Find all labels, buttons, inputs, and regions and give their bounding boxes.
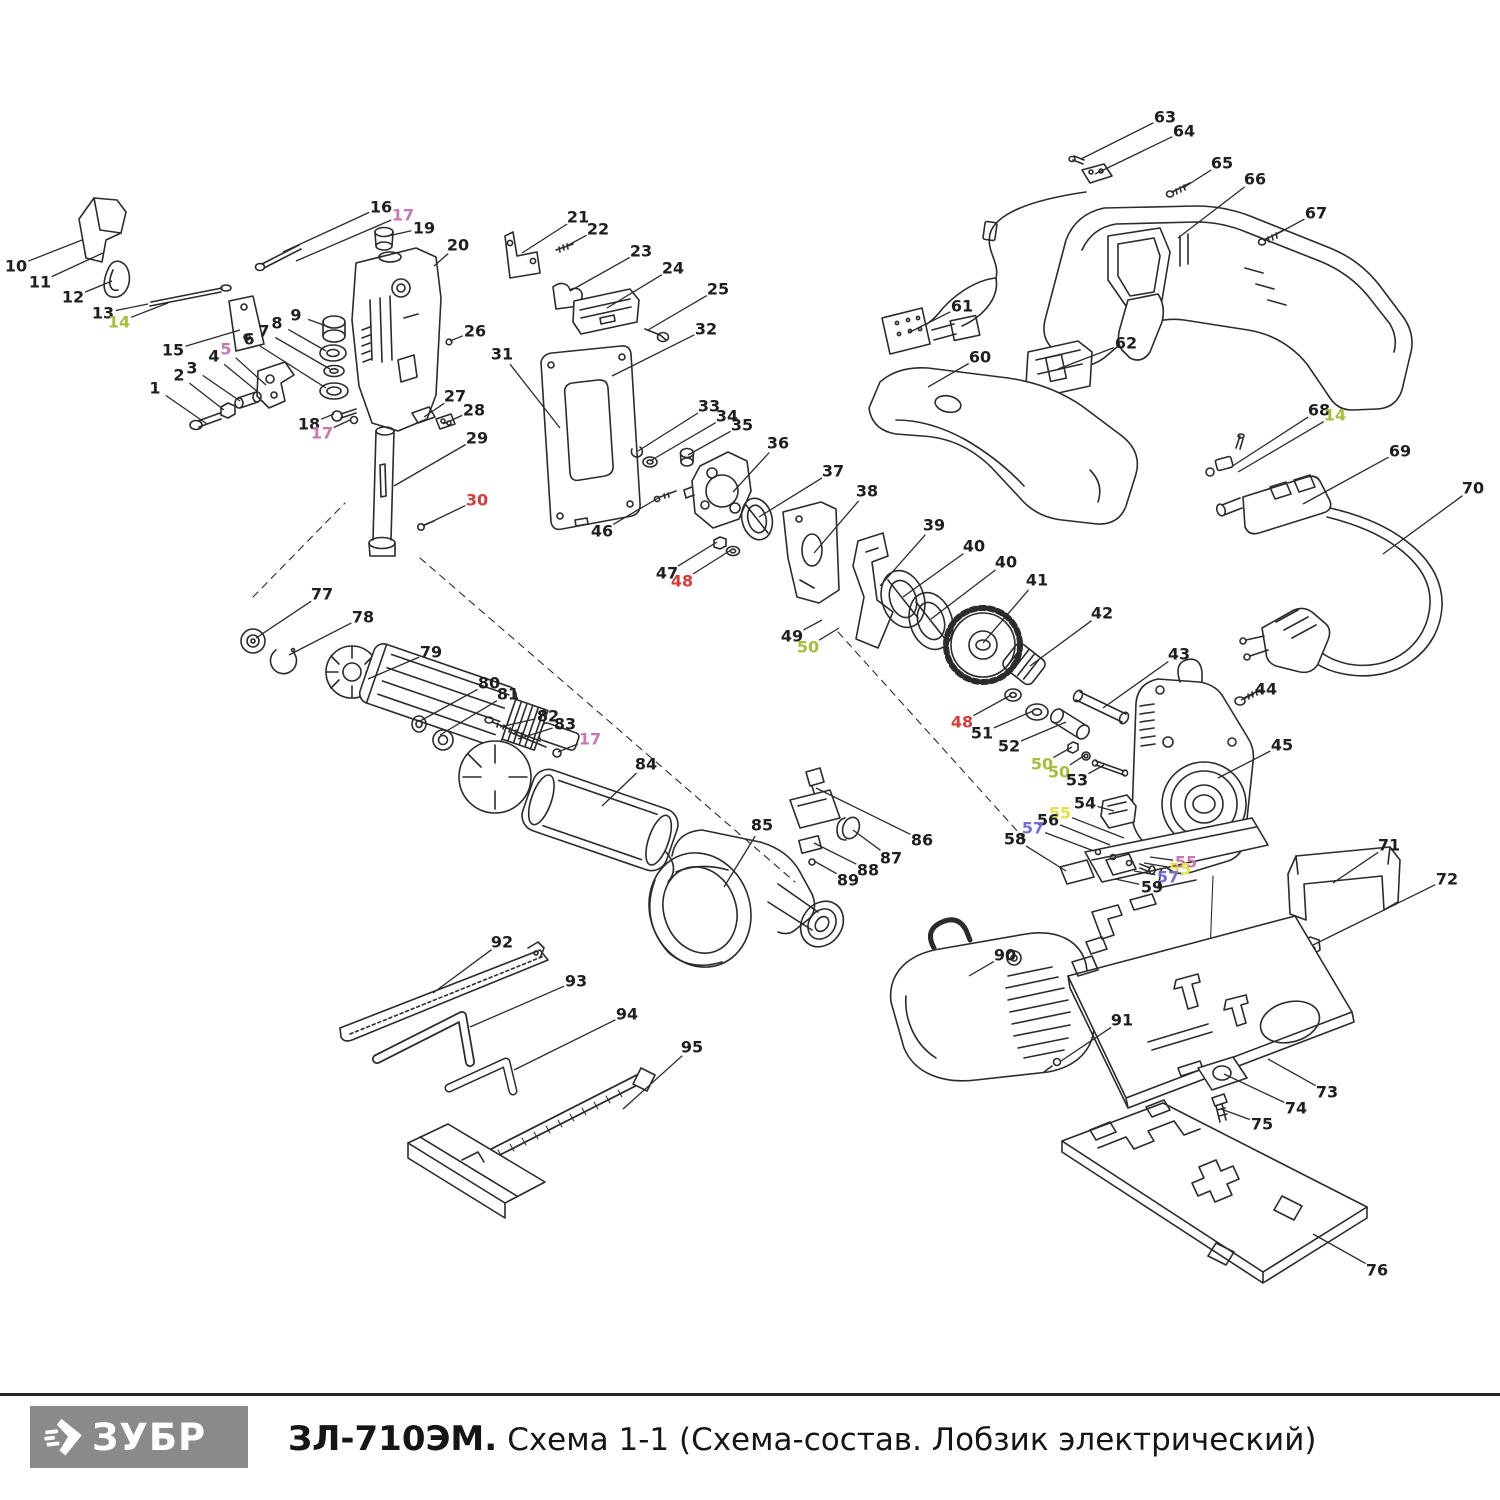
leader-line-59: [1115, 879, 1139, 884]
part-label-24: 24: [662, 259, 684, 278]
part-label-31: 31: [491, 345, 513, 364]
leader-line-56: [1060, 825, 1110, 845]
part-label-23: 23: [630, 242, 652, 261]
leader-line-77: [256, 601, 311, 638]
part-label-20: 20: [447, 236, 469, 255]
part-label-52: 52: [998, 737, 1020, 756]
part-label-60: 60: [969, 348, 991, 367]
part-label-84: 84: [635, 755, 657, 774]
part-label-7: 7: [258, 322, 269, 341]
part-holder-plate-38: [783, 502, 839, 603]
part-housing-shell-60: [869, 368, 1137, 524]
part-label-86: 86: [911, 831, 933, 850]
part-blade-holder-bracket: [79, 198, 129, 297]
leader-line-70: [1383, 496, 1463, 554]
part-label-64: 64: [1173, 122, 1195, 141]
part-label-74: 74: [1285, 1099, 1307, 1118]
part-plunger-housing-20: [352, 248, 441, 431]
part-stator-84: [518, 765, 683, 882]
part-label-38: 38: [856, 482, 878, 501]
leader-line-63: [1081, 123, 1153, 159]
part-label-2: 2: [173, 366, 184, 385]
part-label-91: 91: [1111, 1011, 1133, 1030]
part-label-93: 93: [565, 972, 587, 991]
part-label-66: 66: [1244, 170, 1266, 189]
part-label-8: 8: [271, 314, 282, 333]
leader-line-11: [52, 253, 103, 277]
leader-line-39: [880, 535, 925, 586]
leader-line-51: [994, 711, 1033, 728]
leader-line-34: [650, 423, 716, 461]
leader-line-93: [470, 986, 564, 1027]
part-label-67: 67: [1305, 204, 1327, 223]
part-label-19: 19: [413, 219, 435, 238]
leader-line-94: [514, 1020, 615, 1070]
part-label-88: 88: [857, 861, 879, 880]
leader-line-4: [224, 364, 258, 392]
part-label-25: 25: [707, 280, 729, 299]
part-label-69: 69: [1389, 442, 1411, 461]
part-label-46: 46: [591, 522, 613, 541]
leader-line-9: [308, 319, 329, 327]
part-brush-assembly-86-89: [790, 768, 862, 865]
leader-line-88: [814, 843, 856, 864]
leader-line-10: [28, 240, 82, 261]
leader-line-50: [1070, 755, 1085, 765]
part-label-4: 4: [208, 347, 219, 366]
leader-line-22: [565, 235, 587, 247]
part-label-5: 5: [220, 340, 231, 359]
part-label-73: 73: [1316, 1083, 1338, 1102]
part-label-89: 89: [837, 871, 859, 890]
leader-line-14: [131, 303, 168, 317]
leader-line-89: [814, 861, 837, 874]
part-label-30: 30: [466, 491, 488, 510]
part-cord-clamp-68: [1206, 434, 1244, 476]
part-label-37: 37: [822, 462, 844, 481]
exploded-parts-artwork: [79, 156, 1442, 1283]
part-cover-plate-76: [1062, 1100, 1367, 1283]
part-fan-guard: [459, 741, 531, 813]
part-label-43: 43: [1168, 645, 1190, 664]
part-label-70: 70: [1462, 479, 1484, 498]
part-label-14: 14: [108, 313, 130, 332]
leader-line-52: [1021, 722, 1066, 741]
part-label-42: 42: [1091, 604, 1113, 623]
part-gasket-plates-31-32: [541, 346, 640, 529]
exploded-diagram: 1234567891011121314151617181719202122232…: [0, 0, 1500, 1393]
part-label-50: 50: [797, 638, 819, 657]
part-label-94: 94: [616, 1005, 638, 1024]
leader-line-41: [983, 590, 1029, 643]
part-edge-guide-95: [408, 1068, 655, 1218]
leader-line-23: [570, 257, 630, 291]
part-label-15: 15: [162, 341, 184, 360]
leader-line-64: [1095, 137, 1172, 174]
part-label-9: 9: [290, 306, 301, 325]
part-label-75: 75: [1251, 1115, 1273, 1134]
part-label-95: 95: [681, 1038, 703, 1057]
part-handle-66: [1044, 156, 1412, 410]
leader-line-78: [289, 623, 351, 655]
part-label-45: 45: [1271, 736, 1293, 755]
leader-line-74: [1224, 1074, 1284, 1102]
part-label-62: 62: [1115, 334, 1137, 353]
part-label-21: 21: [567, 208, 589, 227]
leader-line-76: [1313, 1234, 1366, 1264]
part-label-87: 87: [880, 849, 902, 868]
part-label-36: 36: [767, 434, 789, 453]
leader-line-87: [853, 830, 881, 850]
leader-line-33: [638, 413, 698, 451]
exploded-view-page: 1234567891011121314151617181719202122232…: [0, 0, 1500, 1500]
part-clamp-74-screw-75: [1198, 1057, 1247, 1122]
part-label-28: 28: [463, 401, 485, 420]
part-cap-19: [375, 228, 393, 251]
leader-line-30: [423, 506, 465, 526]
part-label-14: 14: [1324, 406, 1346, 425]
part-label-78: 78: [352, 608, 374, 627]
part-label-32: 32: [695, 320, 717, 339]
part-label-81: 81: [497, 685, 519, 704]
leader-line-19: [388, 231, 411, 236]
part-bearing-77-ring-78: [241, 629, 296, 674]
part-label-76: 76: [1366, 1261, 1388, 1280]
leader-line-49: [804, 620, 823, 630]
part-label-29: 29: [466, 429, 488, 448]
leader-line-14: [1238, 422, 1324, 472]
part-label-1: 1: [149, 379, 160, 398]
part-label-65: 65: [1211, 154, 1233, 173]
leader-line-29: [394, 445, 466, 487]
part-label-39: 39: [923, 516, 945, 535]
zubr-arrow-icon: [42, 1414, 88, 1460]
part-screw-18: [332, 409, 358, 424]
part-pinion-42: [1001, 641, 1048, 687]
brand-logo: ЗУБР: [30, 1406, 248, 1468]
part-label-59: 59: [1141, 878, 1163, 897]
part-label-17: 17: [392, 206, 414, 225]
part-label-40: 40: [963, 537, 985, 556]
leader-line-15: [186, 330, 241, 346]
part-label-41: 41: [1026, 571, 1048, 590]
part-label-6: 6: [243, 330, 254, 349]
leader-line-13: [116, 304, 148, 311]
part-label-72: 72: [1436, 870, 1458, 889]
part-label-58: 58: [1004, 830, 1026, 849]
part-label-22: 22: [587, 220, 609, 239]
part-label-53: 53: [1066, 771, 1088, 790]
part-label-48: 48: [671, 572, 693, 591]
leader-line-48: [973, 695, 1011, 716]
footer-divider: [0, 1393, 1500, 1396]
part-hex-keys-93-94: [377, 1016, 513, 1091]
part-label-51: 51: [971, 724, 993, 743]
part-label-44: 44: [1255, 680, 1277, 699]
part-label-17: 17: [579, 730, 601, 749]
part-plunger-rod-29: [369, 427, 395, 556]
part-label-61: 61: [951, 297, 973, 316]
leader-line-26: [450, 336, 463, 341]
part-label-85: 85: [751, 816, 773, 835]
part-label-12: 12: [62, 288, 84, 307]
part-label-11: 11: [29, 273, 51, 292]
brand-logo-text: ЗУБР: [92, 1419, 206, 1456]
schematic-title: ЗЛ-710ЭМ.Схема 1-1 (Схема-состав. Лобзик…: [288, 1419, 1316, 1459]
part-label-26: 26: [464, 322, 486, 341]
part-label-48: 48: [951, 713, 973, 732]
part-label-40: 40: [995, 553, 1017, 572]
part-label-71: 71: [1378, 836, 1400, 855]
part-label-77: 77: [311, 585, 333, 604]
leader-line-50: [819, 628, 839, 640]
part-label-17: 17: [311, 424, 333, 443]
model-name: ЗЛ-710ЭМ.: [288, 1419, 497, 1459]
leader-line-72: [1313, 885, 1435, 945]
leader-line-1: [166, 395, 207, 424]
part-label-16: 16: [370, 198, 392, 217]
leader-line-58: [1026, 846, 1066, 871]
part-cord-protector-69: [1215, 475, 1330, 534]
part-support-39: [853, 533, 893, 648]
part-label-35: 35: [731, 416, 753, 435]
part-label-92: 92: [491, 933, 513, 952]
part-label-90: 90: [994, 946, 1016, 965]
leader-line-12: [85, 281, 112, 292]
part-label-10: 10: [5, 257, 27, 276]
part-label-3: 3: [186, 359, 197, 378]
leader-line-65: [1183, 170, 1211, 188]
schematic-caption: Схема 1-1 (Схема-состав. Лобзик электрич…: [507, 1422, 1316, 1458]
part-end-cover-90: [891, 920, 1095, 1081]
leader-line-16: [283, 212, 369, 252]
part-pins-13-16: [150, 245, 301, 306]
leader-line-42: [1030, 621, 1092, 666]
leader-line-73: [1268, 1059, 1316, 1086]
part-label-54: 54: [1074, 794, 1096, 813]
part-label-79: 79: [420, 643, 442, 662]
part-label-83: 83: [554, 715, 576, 734]
leader-line-17: [296, 220, 391, 261]
